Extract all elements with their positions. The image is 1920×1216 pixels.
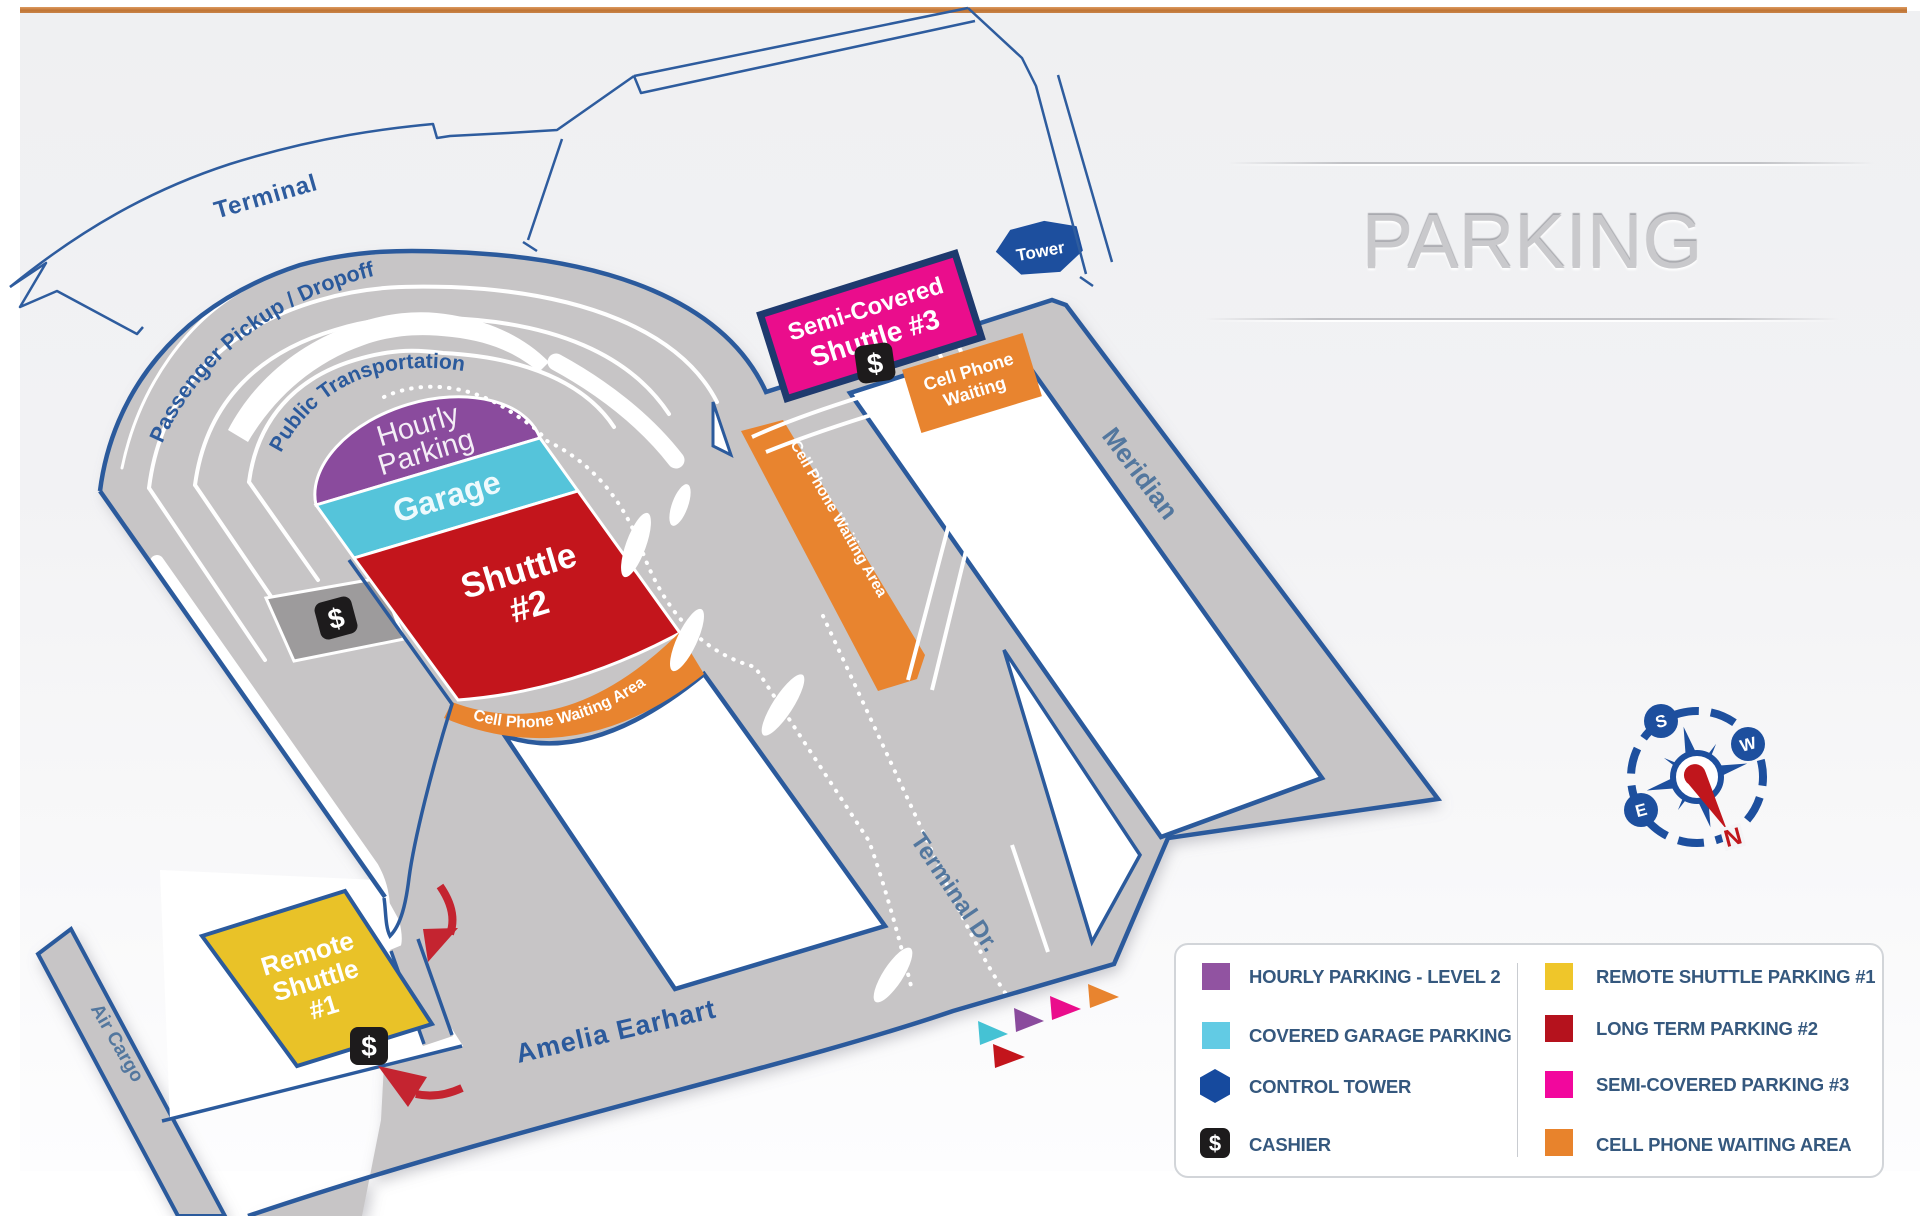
svg-text:Terminal: Terminal [211, 169, 321, 224]
svg-text:N: N [1721, 822, 1745, 853]
svg-text:$: $ [361, 1031, 377, 1062]
svg-text:$: $ [1209, 1131, 1221, 1156]
